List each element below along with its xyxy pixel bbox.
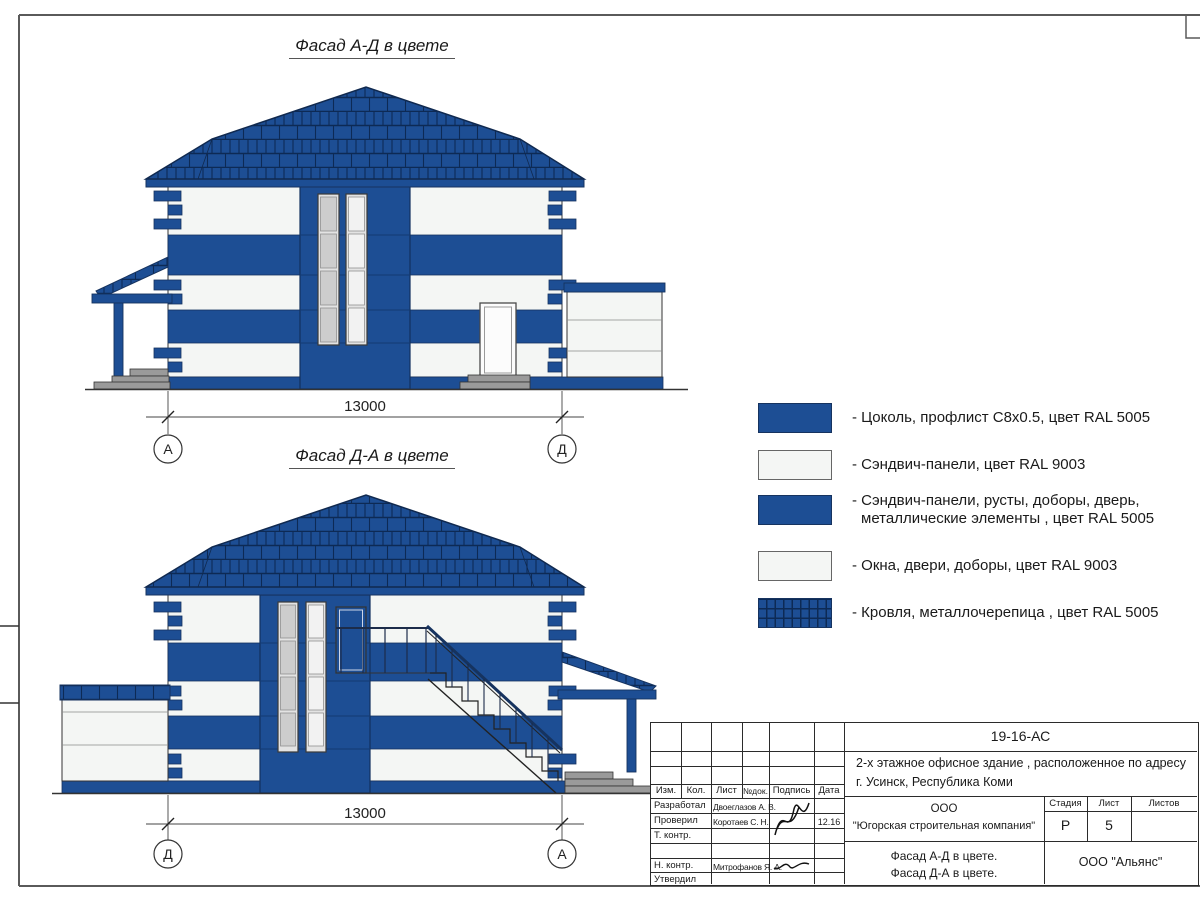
col-header-data: Дата (814, 784, 844, 798)
facade-da-right-steps (565, 772, 653, 793)
axis-marker-right: А (548, 840, 576, 868)
axis-marker-right: Д (548, 435, 576, 463)
object-name-line2: г. Усинск, Республика Коми (856, 773, 1013, 792)
legend-label: - Сэндвич-панели, русты, доборы, дверь, … (852, 492, 1154, 528)
facade-ad-door (480, 303, 516, 377)
swatch-roof-tiles (758, 598, 832, 628)
grid-line (651, 766, 844, 767)
sheets-label: Листов (1131, 797, 1197, 811)
drawing-title-line2: Фасад Д-А в цвете. (844, 866, 1044, 880)
facade-da-drawing: 13000 Д А (52, 495, 700, 868)
facade-ad-door-steps (460, 375, 530, 389)
grid-line (651, 843, 844, 844)
facade-ad-left-steps (94, 369, 170, 389)
col-header-list: Лист (711, 784, 742, 798)
col-header-izm: Изм. (651, 784, 681, 798)
facade-da-window-left (278, 602, 298, 752)
drawing-title-line1: Фасад А-Д в цвете. (844, 849, 1044, 863)
row-role: Разработал (654, 799, 706, 813)
row-name: Двоеглазов А. В. (713, 800, 776, 814)
facade-ad-window-right (346, 194, 367, 345)
facade-ad-title: Фасад А-Д в цвете (242, 36, 502, 59)
swatch-plinth-blue (758, 403, 832, 433)
dimension-label: 13000 (344, 398, 386, 415)
col-header-kol: Кол. (681, 784, 711, 798)
swatch-windows-white (758, 551, 832, 581)
facade-da-window-right (306, 602, 326, 752)
legend-label: - Цоколь, профлист С8х0.5, цвет RAL 5005 (852, 409, 1150, 427)
row-role: Т. контр. (654, 829, 691, 843)
row-role: Проверил (654, 814, 698, 828)
company-line1: ООО (844, 802, 1044, 816)
dimension-label: 13000 (344, 805, 386, 822)
legend-item: - Окна, двери, доборы, цвет RAL 9003 (758, 551, 1188, 581)
axis-marker-left: А (154, 435, 182, 463)
grid-line (814, 723, 815, 884)
title-block: Изм. Кол. Лист №док. Подпись Дата Разраб… (650, 722, 1199, 886)
signature-scribble (769, 856, 814, 873)
facade-ad-window-left (318, 194, 339, 345)
grid-line (1044, 811, 1197, 812)
facade-ad-canopy (92, 257, 172, 377)
doc-code: 19-16-АС (844, 729, 1197, 743)
svg-text:А: А (557, 846, 567, 862)
legend-item: - Сэндвич-панели, цвет RAL 9003 (758, 450, 1188, 480)
row-role: Н. контр. (654, 859, 693, 873)
legend-item: - Кровля, металлочерепица , цвет RAL 500… (758, 598, 1188, 628)
sheet-label: Лист (1087, 797, 1131, 811)
contractor-name: ООО "Альянс" (1044, 855, 1197, 869)
legend-label: - Кровля, металлочерепица , цвет RAL 500… (852, 604, 1159, 622)
grid-line (711, 723, 712, 884)
swatch-panel-white (758, 450, 832, 480)
svg-text:Д: Д (557, 441, 567, 457)
legend-label: - Окна, двери, доборы, цвет RAL 9003 (852, 557, 1117, 575)
drawing-sheet: 13000 А Д (0, 0, 1200, 900)
signature-scribble (769, 795, 814, 843)
object-name-line1: 2-х этажное офисное здание , расположенн… (856, 754, 1186, 773)
legend-label: - Сэндвич-панели, цвет RAL 9003 (852, 456, 1085, 474)
facade-da-annex (60, 685, 170, 781)
swatch-elements-blue (758, 495, 832, 525)
col-header-ndok: №док. (742, 784, 769, 798)
svg-text:Д: Д (163, 846, 173, 862)
facade-da-roof (146, 495, 584, 595)
color-legend: - Цоколь, профлист С8х0.5, цвет RAL 5005… (758, 403, 1188, 628)
facade-ad-roof (146, 87, 584, 187)
row-role: Утвердил (654, 873, 696, 887)
stage-value: Р (1044, 818, 1087, 832)
stage-label: Стадия (1044, 797, 1087, 811)
company-line2: "Югорская строительная компания" (844, 819, 1044, 833)
grid-line (844, 841, 1197, 842)
svg-text:А: А (163, 441, 173, 457)
frame-binding-ticks (0, 626, 19, 703)
legend-item: - Цоколь, профлист С8х0.5, цвет RAL 5005 (758, 403, 1188, 433)
axis-marker-left: Д (154, 840, 182, 868)
facade-ad-drawing: 13000 А Д (85, 87, 688, 463)
row-date: 12.16 (814, 815, 844, 829)
legend-item: - Сэндвич-панели, русты, доборы, дверь, … (758, 492, 1188, 528)
grid-line (651, 751, 1197, 752)
row-name: Коротаев С. Н. (713, 815, 769, 829)
plinth-band (163, 377, 663, 389)
facade-ad-annex (564, 283, 665, 377)
facade-da-title: Фасад Д-А в цвете (242, 446, 502, 469)
sheet-value: 5 (1087, 818, 1131, 832)
